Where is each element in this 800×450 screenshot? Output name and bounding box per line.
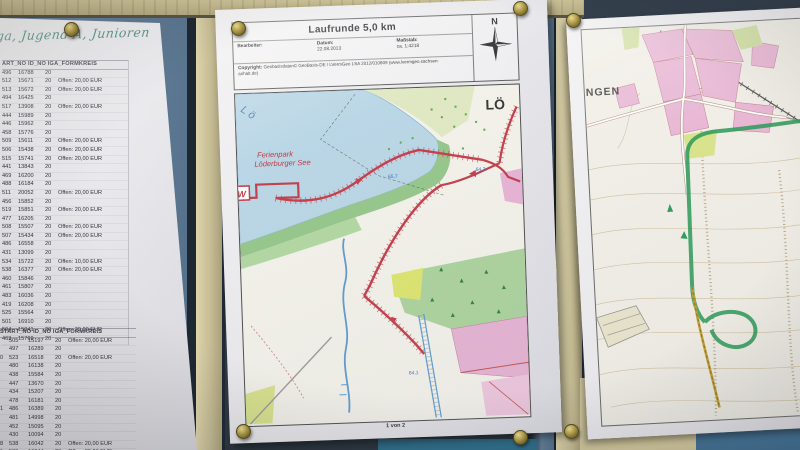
table-cell: 515 xyxy=(2,156,18,164)
compass-box: N xyxy=(472,13,518,80)
table-cell: 20 xyxy=(55,363,68,371)
field-datum: Datum: 22.08.2013 xyxy=(313,37,393,61)
table-cell xyxy=(0,432,9,440)
table-cell: 13099 xyxy=(18,250,45,258)
table-cell xyxy=(58,302,128,310)
table-cell: 15852 xyxy=(18,199,45,207)
stream xyxy=(334,235,441,420)
table-row: 5191585120Offen: 20,00 EUR xyxy=(2,207,128,216)
table-cell: 447 xyxy=(9,381,28,389)
allotment-area xyxy=(596,305,650,348)
table-row: 4191620820 xyxy=(2,302,128,311)
table-cell xyxy=(68,424,136,432)
start-marker: W xyxy=(235,186,249,200)
table-row: 4801613820 xyxy=(0,363,136,372)
table-cell: 13670 xyxy=(28,381,55,389)
table-cell: 20 xyxy=(45,199,58,207)
table-cell: Offen: 20,00 EUR xyxy=(58,190,128,198)
table-cell: 20 xyxy=(45,259,58,267)
route-map: W L ö Ferienpark Löderburger See LÖ 65,7… xyxy=(235,84,530,426)
table-cell: 20052 xyxy=(18,190,45,198)
table-cell xyxy=(58,173,128,181)
table-row: 4411384320 xyxy=(2,164,128,173)
table-cell: Offen: 20,00 EUR xyxy=(58,138,128,146)
table-cell: 446 xyxy=(2,121,18,129)
table-cell xyxy=(68,406,136,414)
table-row: 85381604220Offen: 20,00 EUR xyxy=(0,441,136,450)
table-cell: 13843 xyxy=(18,164,45,172)
table-cell xyxy=(68,415,136,423)
table-cell: 16042 xyxy=(28,441,55,449)
table-cell: 20 xyxy=(45,147,58,155)
table-row: 5011691020 xyxy=(2,319,128,328)
table-cell: Offen: 20,00 EUR xyxy=(58,267,128,275)
table-cell: 16377 xyxy=(18,267,45,275)
table-cell xyxy=(58,241,128,249)
table-cell: Offen: 20,00 EUR xyxy=(58,224,128,232)
table-cell: 513 xyxy=(2,87,18,95)
table-cell: 488 xyxy=(2,181,18,189)
table-cell: 20 xyxy=(55,424,68,432)
table-cell: 15197 xyxy=(28,338,55,346)
table-row: 4971628920 xyxy=(0,346,136,355)
table-cell: 20 xyxy=(55,441,68,449)
table-cell xyxy=(58,250,128,258)
map-frame: W L ö Ferienpark Löderburger See LÖ 65,7… xyxy=(234,83,531,427)
table-cell: 509 xyxy=(2,138,18,146)
table-cell xyxy=(0,381,9,389)
table-cell: 469 xyxy=(2,173,18,181)
table-cell: 20 xyxy=(45,113,58,121)
table-cell: 506 xyxy=(2,147,18,155)
table-cell: 13908 xyxy=(18,104,45,112)
table-row: 5131567220Offen: 20,00 EUR xyxy=(2,87,128,96)
table-cell xyxy=(58,293,128,301)
table-cell: 16389 xyxy=(28,406,55,414)
lake-loederburger-see xyxy=(235,86,481,269)
table-row: 5091561120Offen: 20,00 EUR xyxy=(2,138,128,147)
table-cell: 15584 xyxy=(28,372,55,380)
table-cell: 20 xyxy=(45,233,58,241)
table-cell: 15851 xyxy=(18,207,45,215)
table-cell: 525 xyxy=(2,310,18,318)
table-row: 4811499820 xyxy=(0,415,136,424)
table-row: 4441598920 xyxy=(2,113,128,122)
table-cell: 20 xyxy=(55,338,68,346)
table-cell: 16200 xyxy=(18,173,45,181)
table-cell: 486 xyxy=(9,406,28,414)
pink-dashed-path xyxy=(251,324,304,400)
table-cell: 15095 xyxy=(28,424,55,432)
table-row: 4771620520 xyxy=(2,216,128,225)
table-row: 4381558420 xyxy=(0,372,136,381)
table-cell: 15776 xyxy=(18,130,45,138)
table-cell: 20 xyxy=(55,406,68,414)
field-massstab: Maßstab: ca. 1:4218 xyxy=(392,34,472,58)
table-cell: 14998 xyxy=(28,415,55,423)
fee-table-1-header: ART_NO ID_NO IGA_FORMKREIS xyxy=(2,61,128,70)
table-row: 5112005220Offen: 20,00 EUR xyxy=(2,190,128,199)
table-cell: 20 xyxy=(45,284,58,292)
noticeboard-photo: ga, Jugend A, Junioren ART_NO ID_NO IGA_… xyxy=(0,0,800,450)
table-row: 4341520720 xyxy=(0,389,136,398)
table-row: 4521509520 xyxy=(0,424,136,433)
table-cell: 15564 xyxy=(18,310,45,318)
table-cell: 20 xyxy=(45,302,58,310)
table-cell xyxy=(58,164,128,172)
table-cell: 480 xyxy=(9,363,28,371)
table-cell xyxy=(0,346,9,354)
table-cell: 16181 xyxy=(28,398,55,406)
route-direction-arrows xyxy=(667,203,688,240)
table-cell xyxy=(58,181,128,189)
table-cell: 478 xyxy=(9,398,28,406)
table-cell: Offen: 20,00 EUR xyxy=(58,147,128,155)
table-cell: 534 xyxy=(2,259,18,267)
topo-map: NGEN xyxy=(582,14,800,426)
town-name-partial: NGEN xyxy=(586,85,621,99)
table-cell: 16289 xyxy=(28,346,55,354)
table-cell: Offen: 20,00 EUR xyxy=(58,104,128,112)
table-row: 4881618420 xyxy=(2,181,128,190)
table-row: 4581577620 xyxy=(2,130,128,139)
table-cell: 20 xyxy=(55,372,68,380)
table-cell: 481 xyxy=(9,415,28,423)
pin-left-paper-top xyxy=(64,22,79,37)
massstab-value: ca. 1:4218 xyxy=(397,44,420,50)
table-cell: 461 xyxy=(2,284,18,292)
table-cell: 456 xyxy=(2,199,18,207)
table-cell: 497 xyxy=(9,346,28,354)
table-cell: 512 xyxy=(2,78,18,86)
laufrunde-map-sheet: Laufrunde 5,0 km Bearbeiter: Datum: 22.0… xyxy=(215,0,562,444)
table-cell: 538 xyxy=(2,267,18,275)
table-cell: 20 xyxy=(45,276,58,284)
table-cell: 523 xyxy=(9,355,28,363)
table-cell: Offen: 20,00 EUR xyxy=(58,156,128,164)
slope-hatching xyxy=(697,47,800,416)
table-cell xyxy=(68,363,136,371)
table-cell xyxy=(0,415,9,423)
copyright-line2: anhalt.de) xyxy=(238,71,258,77)
table-cell xyxy=(0,363,9,371)
table-cell: 507 xyxy=(2,233,18,241)
table-cell xyxy=(68,389,136,397)
table-cell: 20 xyxy=(45,164,58,172)
elevation-b: 64,2 xyxy=(476,167,486,173)
table-cell: 16036 xyxy=(18,293,45,301)
table-cell: 20 xyxy=(45,156,58,164)
pin-right-top-left xyxy=(566,13,581,28)
table-cell xyxy=(58,310,128,318)
table-cell: 16425 xyxy=(18,95,45,103)
table-cell xyxy=(58,113,128,121)
table-cell: 15722 xyxy=(18,259,45,267)
table-cell xyxy=(58,130,128,138)
table-cell: 20 xyxy=(55,415,68,423)
table-cell: 441 xyxy=(2,164,18,172)
bearbeiter-label: Bearbeiter: xyxy=(237,42,309,50)
table-cell: 16558 xyxy=(18,241,45,249)
pin-center-top-right xyxy=(513,1,528,16)
table-row: 5151574120Offen: 20,00 EUR xyxy=(2,156,128,165)
table-cell xyxy=(0,372,9,380)
pin-center-bottom-left xyxy=(236,424,251,439)
table-cell: 538 xyxy=(9,441,28,449)
table-cell: 508 xyxy=(2,224,18,232)
table-cell: 505 xyxy=(9,338,28,346)
table-cell xyxy=(68,432,136,440)
table-cell: 20 xyxy=(45,207,58,215)
datum-value: 22.08.2013 xyxy=(317,46,341,52)
table-cell: Offen: 20,00 EUR xyxy=(58,78,128,86)
table-row: 4601584620 xyxy=(2,276,128,285)
table-cell: 15672 xyxy=(18,87,45,95)
pin-center-bottom-right xyxy=(513,430,528,445)
table-cell: 434 xyxy=(9,389,28,397)
table-cell: 15962 xyxy=(18,121,45,129)
table-cell xyxy=(0,398,9,406)
table-cell: 20 xyxy=(55,398,68,406)
table-cell: 438 xyxy=(9,372,28,380)
table-cell: 444 xyxy=(2,113,18,121)
table-cell xyxy=(58,216,128,224)
table-cell: Offen: 10,00 EUR xyxy=(58,259,128,267)
table-cell xyxy=(0,389,9,397)
topo-map-sheet: NGEN xyxy=(566,3,800,440)
table-cell: 460 xyxy=(2,276,18,284)
table-cell: 16910 xyxy=(18,319,45,327)
table-cell: 20 xyxy=(45,121,58,129)
table-row: 4961678820 xyxy=(2,70,128,79)
table-row: 4471367020 xyxy=(0,381,136,390)
table-row: 14861638920 xyxy=(0,406,136,415)
table-row: 05231651820Offen: 20,00 EUR xyxy=(0,355,136,364)
table-cell: 452 xyxy=(9,424,28,432)
table-row: 4941642520 xyxy=(2,95,128,104)
table-cell: 458 xyxy=(2,130,18,138)
table-cell: 20 xyxy=(45,267,58,275)
pin-center-top-left xyxy=(231,21,246,36)
canal-hatching xyxy=(421,315,439,418)
table-cell: 15438 xyxy=(18,147,45,155)
table-cell: 20 xyxy=(55,381,68,389)
table-row: 4461596220 xyxy=(2,121,128,130)
table-cell xyxy=(58,121,128,129)
table-cell: 15989 xyxy=(18,113,45,121)
table-cell: Offen: 20,00 EUR xyxy=(68,338,136,346)
table-cell xyxy=(58,70,128,78)
table-cell: 486 xyxy=(2,241,18,249)
table-cell xyxy=(68,398,136,406)
table-cell: 20 xyxy=(45,190,58,198)
table-cell: 16138 xyxy=(28,363,55,371)
table-cell: 20 xyxy=(45,310,58,318)
table-row: 4561585220 xyxy=(2,199,128,208)
fee-table-2-rows: 5051519720Offen: 20,00 EUR49716289200523… xyxy=(0,338,136,450)
table-row: 5171390820Offen: 20,00 EUR xyxy=(2,104,128,113)
table-cell: 15611 xyxy=(18,138,45,146)
table-cell xyxy=(58,276,128,284)
table-cell: 15671 xyxy=(18,78,45,86)
table-cell xyxy=(68,381,136,389)
table-row: 4611580720 xyxy=(2,284,128,293)
table-cell: 477 xyxy=(2,216,18,224)
table-row: 5341572220Offen: 10,00 EUR xyxy=(2,259,128,268)
table-cell: 0 xyxy=(0,355,9,363)
table-cell: 10094 xyxy=(28,432,55,440)
table-cell xyxy=(0,424,9,432)
table-cell: 20 xyxy=(45,224,58,232)
table-cell: 8 xyxy=(0,441,9,449)
table-row: 5381637720Offen: 20,00 EUR xyxy=(2,267,128,276)
table-cell: 20 xyxy=(45,216,58,224)
table-cell xyxy=(58,319,128,327)
table-cell: 20 xyxy=(55,389,68,397)
table-cell: 20 xyxy=(55,346,68,354)
fee-table-1-rows: 49616788205121567120Offen: 20,00 EUR5131… xyxy=(2,70,128,345)
table-cell: 20 xyxy=(55,355,68,363)
table-cell: 483 xyxy=(2,293,18,301)
table-cell: 16205 xyxy=(18,216,45,224)
table-cell: 15434 xyxy=(18,233,45,241)
table-row: 5051519720Offen: 20,00 EUR xyxy=(0,338,136,347)
table-cell: Offen: 20,00 EUR xyxy=(68,355,136,363)
topo-map-frame: NGEN xyxy=(581,13,800,427)
table-row: 4311309920 xyxy=(2,250,128,259)
elevation-c: 64,1 xyxy=(409,370,419,376)
table-cell xyxy=(58,199,128,207)
table-cell: 20 xyxy=(45,293,58,301)
table-cell: 431 xyxy=(2,250,18,258)
compass-n-label: N xyxy=(491,16,498,26)
table-cell: 15207 xyxy=(28,389,55,397)
field-bearbeiter: Bearbeiter: xyxy=(233,40,313,64)
table-cell: 20 xyxy=(45,70,58,78)
table-cell: 15807 xyxy=(18,284,45,292)
table-cell: 20 xyxy=(45,104,58,112)
table-cell: 15846 xyxy=(18,276,45,284)
fee-table-2: START_NO ID_NO IGA_FORMKREIS 5051519720O… xyxy=(0,328,136,450)
town-partial-label: LÖ xyxy=(485,96,505,113)
table-cell: Offen: 20,00 EUR xyxy=(58,207,128,215)
table-cell: 16208 xyxy=(18,302,45,310)
table-cell: Offen: 20,00 EUR xyxy=(58,87,128,95)
table-cell: 20 xyxy=(45,130,58,138)
table-cell: 20 xyxy=(45,95,58,103)
table-cell: Offen: 20,00 EUR xyxy=(68,441,136,449)
table-cell: 20 xyxy=(45,250,58,258)
table-row: 5061543820Offen: 20,00 EUR xyxy=(2,147,128,156)
table-cell: 15507 xyxy=(18,224,45,232)
table-row: 4301009420 xyxy=(0,432,136,441)
table-cell xyxy=(68,372,136,380)
table-cell xyxy=(68,346,136,354)
compass-rose-icon xyxy=(478,26,513,63)
table-cell: Offen: 20,00 EUR xyxy=(58,233,128,241)
fee-table-1: ART_NO ID_NO IGA_FORMKREIS 4961678820512… xyxy=(2,60,129,345)
table-row: 4861655820 xyxy=(2,241,128,250)
handwritten-note: ga, Jugend A, Junioren xyxy=(0,23,187,43)
table-cell xyxy=(0,338,9,346)
table-row: 4691620020 xyxy=(2,173,128,182)
table-cell: 419 xyxy=(2,302,18,310)
fee-table-2-header: START_NO ID_NO IGA_FORMKREIS xyxy=(0,329,136,338)
table-row: 4831603620 xyxy=(2,293,128,302)
map-sheet-header: Laufrunde 5,0 km Bearbeiter: Datum: 22.0… xyxy=(231,12,519,90)
table-cell: 1 xyxy=(0,406,9,414)
table-cell: 511 xyxy=(2,190,18,198)
table-row: 4781618120 xyxy=(0,398,136,407)
table-cell: 20 xyxy=(45,87,58,95)
table-cell: 517 xyxy=(2,104,18,112)
table-cell xyxy=(58,95,128,103)
table-cell: 494 xyxy=(2,95,18,103)
table-cell: 20 xyxy=(55,432,68,440)
table-cell: 430 xyxy=(9,432,28,440)
table-cell: 20 xyxy=(45,181,58,189)
pin-right-bottom-left xyxy=(564,424,579,439)
table-cell: 519 xyxy=(2,207,18,215)
table-row: 5121567120Offen: 20,00 EUR xyxy=(2,78,128,87)
table-cell: 20 xyxy=(45,173,58,181)
table-cell: 20 xyxy=(45,241,58,249)
table-cell: 501 xyxy=(2,319,18,327)
table-cell: 15741 xyxy=(18,156,45,164)
elevation-a: 65,7 xyxy=(388,174,398,180)
table-cell: 20 xyxy=(45,78,58,86)
table-cell: 20 xyxy=(45,138,58,146)
table-cell xyxy=(58,284,128,292)
table-cell: 496 xyxy=(2,70,18,78)
table-cell: 20 xyxy=(45,319,58,327)
table-row: 5251556420 xyxy=(2,310,128,319)
header-left: Laufrunde 5,0 km Bearbeiter: Datum: 22.0… xyxy=(232,15,474,89)
table-row: 5071543420Offen: 20,00 EUR xyxy=(2,233,128,242)
table-row: 5081550720Offen: 20,00 EUR xyxy=(2,224,128,233)
table-cell: 16518 xyxy=(28,355,55,363)
table-cell: 16184 xyxy=(18,181,45,189)
table-cell: 16788 xyxy=(18,70,45,78)
